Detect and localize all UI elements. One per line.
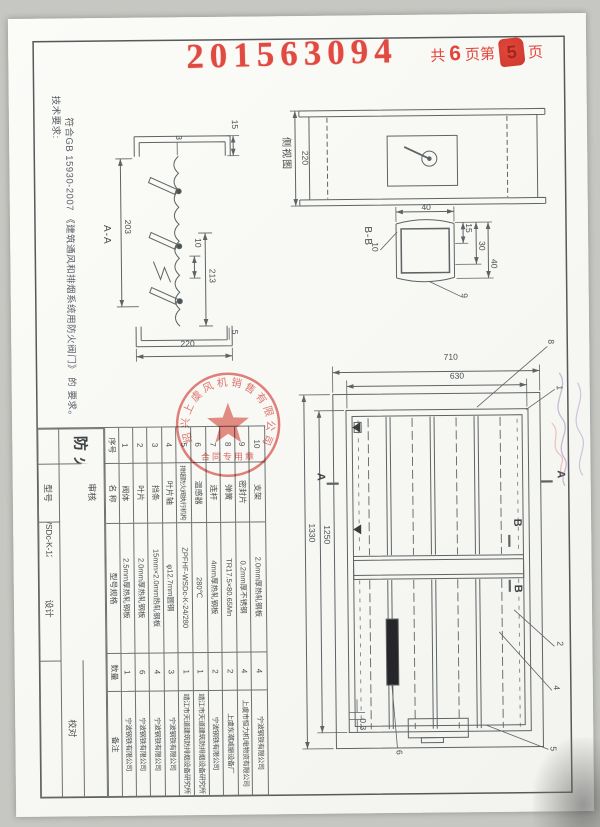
header-qty: 数量 <box>107 653 120 691</box>
section-aa-lines <box>115 136 241 362</box>
part-1-spec: 2.5mm厚热轧钢板 <box>119 523 135 653</box>
product-name: 排烟防火阀 <box>59 428 103 463</box>
part-6-remark: 靖江市天道建筑防排烟设备研究所 <box>194 690 210 796</box>
part-6-qty: 1 <box>194 652 209 690</box>
section-ticks <box>327 481 554 593</box>
dim-aa-3: 3 <box>174 135 183 140</box>
leader-4: 4 <box>552 685 561 690</box>
side-view-lines <box>290 108 546 206</box>
dim-bb-40-left: 40 <box>409 203 443 213</box>
header-spec: 型号规格 <box>106 523 120 653</box>
page-stamp-prefix: 共 <box>430 44 446 66</box>
part-3-no: 3 <box>147 427 162 462</box>
title-row3-label: 设计 <box>39 557 61 661</box>
part-9-qty: 4 <box>237 652 252 690</box>
part-1-remark: 宁波钢铁有限公司 <box>121 691 137 797</box>
section-marker-b-right: B <box>512 585 524 593</box>
dim-front-710: 710 <box>434 353 468 363</box>
section-marker-a-bottom: A <box>315 473 327 481</box>
tech-req-heading: 技术要求: <box>50 95 64 138</box>
dim-front-1330: 1330 <box>307 513 317 553</box>
seal-subtitle: 合同专用章 <box>201 450 256 462</box>
scanned-paper: 符合GB 15930-2007 《建筑通风和排烟系统用防火阀门》 的 要求。 技… <box>8 13 594 817</box>
part-5-remark: 靖江市天道建筑防排烟设备研究所 <box>179 690 195 796</box>
title-row1-blank <box>59 463 83 660</box>
page-stamp-total: 6 <box>449 42 462 66</box>
dim-bb-40-right: 40 <box>489 259 498 269</box>
drawing-sheet: 符合GB 15930-2007 《建筑通风和排烟系统用防火阀门》 的 要求。 技… <box>31 34 574 800</box>
dim-aa-5: 5 <box>230 330 239 335</box>
company-seal: 绍兴上虞风机销售有限公司 合同专用章 <box>167 364 288 485</box>
dim-aa-213: 213 <box>207 256 217 296</box>
part-8-remark: 上虞东潮减振设备厂 <box>223 690 239 796</box>
page-number-stamp-blob: 5 <box>498 37 526 67</box>
page-count-stamp: 共 6 页第 5 页 <box>430 37 544 69</box>
part-2-spec: 2.0mm厚热轧钢板 <box>134 523 150 653</box>
scanned-drawing-page: { "page": { "serial_stamp": "201563094",… <box>0 0 600 827</box>
part-3-spec: 15mm×2.0mm热轧钢板 <box>148 522 164 652</box>
part-7-remark: 宁波钢铁有限公司 <box>208 690 224 796</box>
part-2-qty: 6 <box>135 653 150 691</box>
part-4-qty: 3 <box>164 652 179 690</box>
header-name: 名 称 <box>105 463 119 523</box>
part-3-name: 挡条 <box>148 462 163 522</box>
title-row2-blank <box>38 429 59 464</box>
dim-aa-10: 10 <box>193 238 202 248</box>
part-7-spec: 4mm厚热轧钢板 <box>207 522 223 652</box>
handwriting-scribble <box>539 363 600 514</box>
part-10-spec: 2.0mm厚热轧钢板 <box>251 521 267 651</box>
dim-front-630: 630 <box>440 372 474 382</box>
dim-aa-15: 15 <box>230 120 239 130</box>
scan-smudge <box>533 738 600 827</box>
leader-bb-9: 9 <box>459 293 468 298</box>
title-row2-label: 校对 <box>62 660 85 796</box>
break-zigzag <box>153 261 170 282</box>
leader-6: 6 <box>394 750 403 755</box>
star-icon <box>207 403 249 443</box>
part-6-spec: 280℃ <box>192 522 208 652</box>
header-remark: 备注 <box>108 691 122 797</box>
dim-aa-203: 203 <box>122 207 132 247</box>
part-4-remark: 宁波钢铁有限公司 <box>165 690 181 796</box>
section-aa-label: A-A <box>101 225 112 245</box>
part-7-qty: 2 <box>208 652 223 690</box>
model-label: 型号 <box>38 464 60 522</box>
part-9-spec: 0.2mm厚不锈钢 <box>236 522 252 652</box>
part-8-qty: 2 <box>223 652 238 690</box>
fusible-sensor-bar <box>386 619 399 685</box>
part-9-remark: 上虞市恒力机电物资有限公司 <box>238 690 254 796</box>
leader-bb-10: 10 <box>370 242 379 252</box>
part-3-remark: 宁波钢铁有限公司 <box>150 690 166 796</box>
dim-side-220: 220 <box>300 141 310 175</box>
part-3-qty: 4 <box>150 652 165 690</box>
serial-number-stamp: 201563094 <box>186 31 399 77</box>
section-marker-b-left: B <box>511 519 523 527</box>
part-10-remark: 宁波钢铁有限公司 <box>252 689 268 795</box>
part-5-spec: ZPFHF-WSDc-K-24/280 <box>178 522 194 652</box>
part-2-no: 2 <box>133 428 148 463</box>
title-row3-blank1 <box>41 661 63 797</box>
part-1-no: 1 <box>118 428 133 463</box>
leader-2: 2 <box>555 641 564 646</box>
section-bb-lines <box>380 206 494 298</box>
title-block: 审核 排烟防火阀 校对 型号 PFHF WSDc-K-1250×630 设计 日… <box>37 427 108 798</box>
part-10-qty: 4 <box>252 651 267 689</box>
title-row1-label: 审核 <box>81 463 104 521</box>
dim-aa-220: 220 <box>171 339 205 349</box>
part-8-spec: TR17.5×80.65Mn <box>221 522 237 652</box>
side-view-label: 侧视图 <box>280 137 291 170</box>
model-value: PFHF WSDc-K-1250×630 <box>39 522 60 557</box>
leader-8: 8 <box>546 339 555 344</box>
part-1-qty: 1 <box>121 653 136 691</box>
dim-bb-30: 30 <box>477 241 486 251</box>
part-1-name: 阀体 <box>119 463 134 523</box>
part-5-qty: 1 <box>179 652 194 690</box>
dim-front-gap: 0.3 <box>358 718 367 730</box>
dim-bb-15: 15 <box>464 223 473 233</box>
part-2-name: 叶片 <box>133 463 148 523</box>
front-view-lines <box>298 346 558 752</box>
page-stamp-mid: 页第 <box>465 42 496 64</box>
header-no: 序号 <box>105 428 118 463</box>
page-stamp-suffix: 页 <box>528 40 544 62</box>
part-2-remark: 宁波钢铁有限公司 <box>136 691 152 797</box>
part-4-spec: φ12.7mm圆钢 <box>163 522 179 652</box>
dim-front-1250: 1250 <box>322 515 332 555</box>
